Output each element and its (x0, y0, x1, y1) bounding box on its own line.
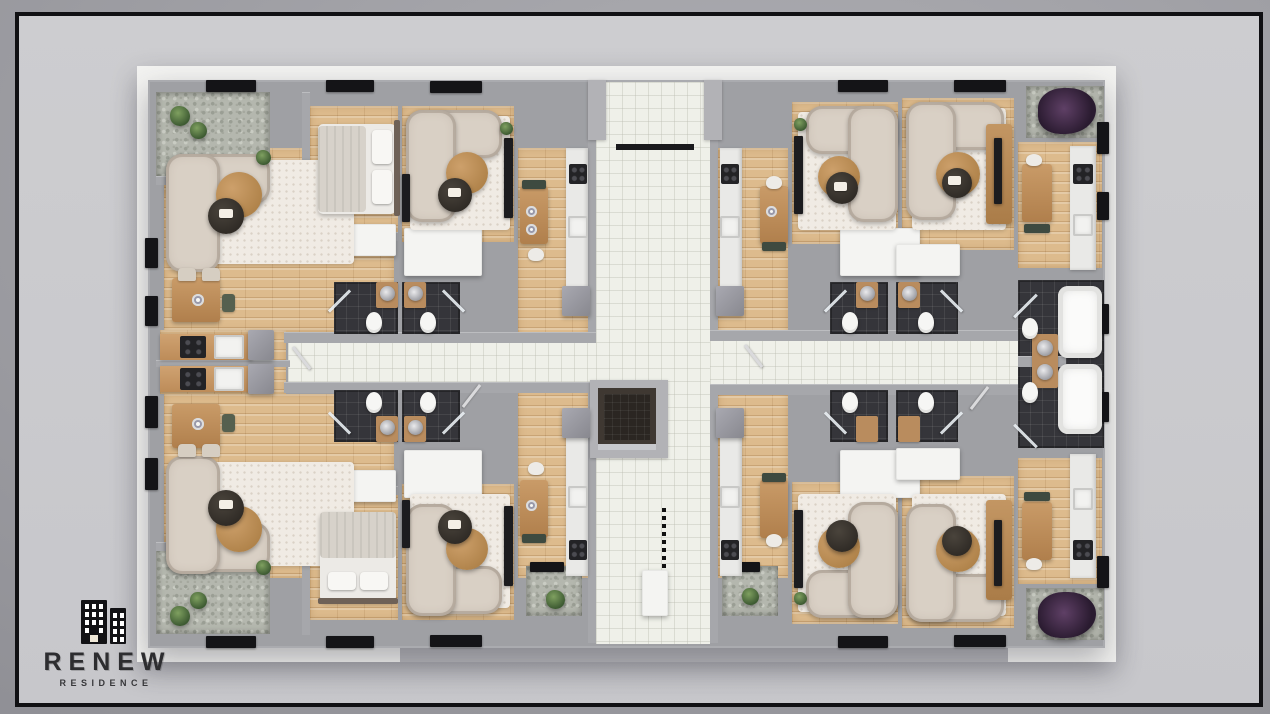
bed-blanket (320, 512, 396, 558)
chair (202, 444, 220, 457)
pillow (328, 572, 356, 590)
hob (721, 540, 739, 560)
toilet (918, 312, 934, 333)
hob (569, 164, 587, 184)
hob (569, 540, 587, 560)
chair (1026, 154, 1042, 166)
plate (192, 418, 204, 430)
pillow (372, 130, 392, 164)
window-left-2 (145, 296, 158, 326)
bush (170, 106, 190, 126)
sink (568, 216, 588, 238)
sink (568, 486, 588, 508)
building-tower-right-icon (110, 608, 126, 644)
plant (256, 560, 271, 575)
patio-bench-left (530, 562, 564, 572)
window-top-1 (206, 80, 256, 92)
bed-headboard (318, 598, 398, 604)
fridge (716, 408, 744, 438)
sink (902, 286, 917, 301)
sideboard (402, 174, 410, 222)
floor-plan (0, 0, 1270, 714)
tv-unit (794, 510, 803, 588)
window-bottom-3 (430, 635, 482, 647)
sofa (848, 502, 898, 618)
sink (860, 286, 875, 301)
dining-table (760, 480, 788, 538)
bathtub (1058, 286, 1102, 358)
building-tower-left-icon (81, 600, 107, 644)
sink (720, 486, 740, 508)
entrance-pillar-left (588, 80, 606, 140)
chair (178, 268, 196, 281)
fridge (716, 286, 744, 316)
bush (546, 590, 565, 609)
bush (742, 588, 759, 605)
tray (219, 209, 233, 218)
sink (214, 367, 244, 391)
tv-unit (504, 138, 513, 218)
window-left-1 (145, 238, 158, 268)
plate (526, 500, 537, 511)
toilet (1022, 382, 1038, 403)
window-bottom-1 (206, 636, 256, 648)
plate (526, 206, 537, 217)
window-bottom-5 (954, 635, 1006, 647)
hob (1073, 540, 1093, 560)
sink (1037, 340, 1053, 356)
vanity (898, 416, 920, 442)
hob (1073, 164, 1093, 184)
toilet (366, 392, 382, 413)
chair (766, 176, 782, 189)
sink (214, 335, 244, 359)
plant (500, 122, 513, 135)
chair (528, 248, 544, 261)
toilet (420, 392, 436, 413)
chair (202, 268, 220, 281)
sink (380, 420, 395, 435)
toilet (1022, 318, 1038, 339)
bed-headboard (394, 120, 400, 216)
fridge (248, 364, 274, 394)
bench (762, 473, 786, 482)
sink (408, 420, 423, 435)
plant (794, 592, 807, 605)
fridge (248, 330, 274, 360)
chair (178, 444, 196, 457)
toilet (842, 392, 858, 413)
tray (448, 188, 461, 197)
coffee-table-dark (826, 520, 858, 552)
chair (528, 462, 544, 475)
hob (721, 164, 739, 184)
corridor-left-floor (288, 342, 596, 382)
pillow (372, 170, 392, 204)
sink (1073, 488, 1093, 510)
wardrobe (896, 448, 960, 480)
window-right-2 (1097, 192, 1109, 220)
window-top-3 (430, 81, 482, 93)
chair (766, 534, 782, 547)
bench (1024, 224, 1050, 233)
bench (522, 534, 546, 543)
wardrobe (896, 244, 960, 276)
dining-table (1022, 502, 1052, 560)
plant (256, 150, 271, 165)
sink (1037, 364, 1053, 380)
window-right-1 (1097, 122, 1109, 154)
sink (720, 216, 740, 238)
bush (190, 122, 207, 139)
window-right-5 (1097, 556, 1109, 588)
tv-unit (794, 136, 803, 214)
wardrobe (404, 228, 482, 276)
hob (180, 368, 206, 390)
coffee-table-dark (942, 526, 972, 556)
tv-screen (994, 138, 1002, 204)
entrance-door-frame (616, 144, 694, 150)
bed-blanket (318, 126, 366, 212)
bench (1024, 492, 1050, 501)
bench (762, 242, 786, 251)
elevator-sill (598, 444, 656, 450)
sink (408, 286, 423, 301)
pillow (360, 572, 388, 590)
chair (222, 294, 235, 312)
window-top-5 (954, 80, 1006, 92)
chair (1026, 558, 1042, 570)
logo-title: RENEW (36, 648, 172, 677)
wardrobe (404, 450, 482, 498)
window-left-4 (145, 458, 158, 490)
plate (766, 206, 777, 217)
tray (834, 182, 847, 191)
hob (180, 336, 206, 358)
plate (192, 294, 204, 306)
logo-subtitle: RESIDENCE (36, 678, 172, 688)
twin-buildings-icon (81, 596, 127, 644)
tray (448, 520, 461, 529)
window-left-3 (145, 396, 158, 428)
chair (222, 414, 235, 432)
window-bottom-2 (326, 636, 374, 648)
sink (1073, 214, 1093, 236)
tv-unit (504, 506, 513, 586)
plant (794, 118, 807, 131)
entrance-pillar-right (704, 80, 722, 140)
tv-screen (994, 520, 1002, 586)
plate (526, 224, 537, 235)
sink (380, 286, 395, 301)
stair-landing (642, 570, 668, 616)
window-bottom-4 (838, 636, 888, 648)
render-canvas: RENEW RESIDENCE (0, 0, 1270, 714)
tray (219, 500, 233, 509)
toilet (918, 392, 934, 413)
dining-table (1022, 164, 1052, 222)
toilet (842, 312, 858, 333)
sideboard (402, 500, 410, 548)
bench (522, 180, 546, 189)
fridge (562, 286, 590, 316)
bush (190, 592, 207, 609)
bush (170, 606, 190, 626)
lobby-floor (596, 82, 710, 644)
toilet (420, 312, 436, 333)
vanity (856, 416, 878, 442)
window-top-2 (326, 80, 374, 92)
window-top-4 (838, 80, 888, 92)
elevator-cab (604, 394, 650, 440)
bathtub (1058, 364, 1102, 434)
fridge (562, 408, 590, 438)
logo: RENEW RESIDENCE (36, 596, 172, 688)
toilet (366, 312, 382, 333)
tray (948, 176, 961, 185)
